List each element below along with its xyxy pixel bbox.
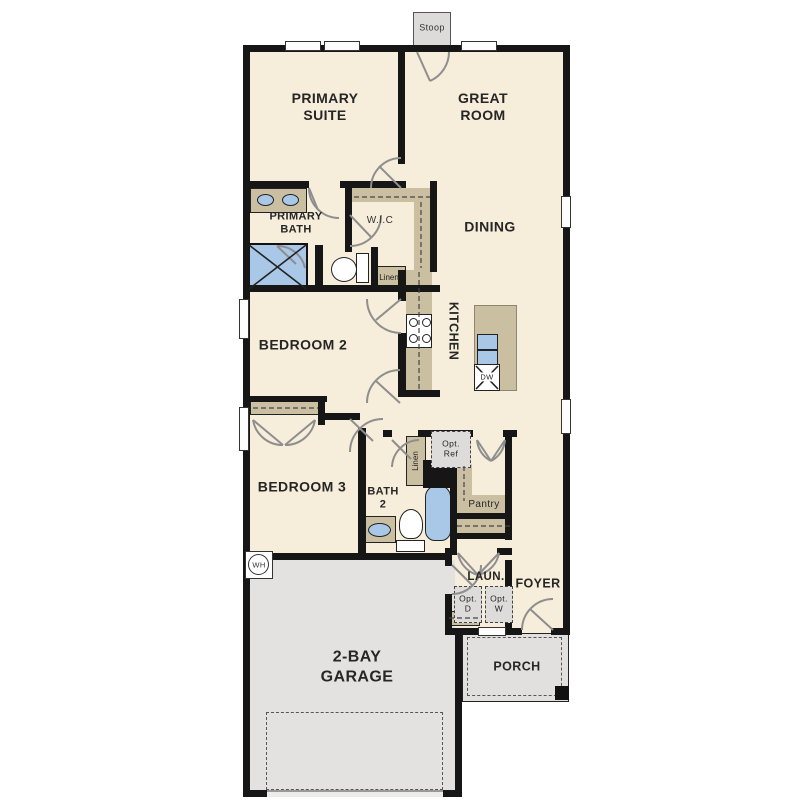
water-heater-label: WH	[252, 560, 265, 569]
bath2-label: BATH 2	[367, 486, 398, 513]
stoop-label: Stoop	[419, 23, 445, 34]
wall	[340, 181, 406, 188]
wall	[398, 270, 406, 301]
wall	[563, 45, 570, 635]
wall	[497, 548, 512, 555]
burner-icon	[422, 318, 431, 327]
garage-door-dash	[266, 712, 443, 790]
floor-plan: Stoop PRIMARY SUITE GREAT ROOM PRIMARY B…	[0, 0, 810, 810]
island-sink-divider	[477, 349, 498, 351]
wall	[430, 181, 437, 272]
shower	[247, 243, 308, 291]
toilet-bowl	[399, 509, 423, 539]
wall	[455, 533, 512, 539]
porch-post	[555, 686, 569, 700]
wall	[322, 413, 360, 420]
window	[461, 41, 497, 51]
window	[324, 41, 360, 51]
toilet-tank	[396, 540, 425, 552]
wall	[445, 628, 480, 635]
opt-dryer-label: Opt. D	[459, 594, 477, 615]
great-room-label: GREAT ROOM	[458, 90, 508, 124]
laundry-label: LAUN.	[467, 570, 504, 584]
wall	[243, 285, 440, 292]
wall	[243, 553, 452, 560]
window	[561, 196, 571, 228]
pantry-label: Pantry	[468, 499, 499, 511]
wall	[243, 181, 309, 188]
bathtub	[425, 485, 451, 541]
dishwasher-label: DW	[479, 372, 494, 381]
window	[478, 627, 506, 636]
wall	[345, 188, 352, 252]
window	[239, 299, 249, 339]
wall	[455, 630, 462, 797]
wall	[383, 430, 392, 437]
burner-icon	[409, 334, 418, 343]
wic-shelf-right	[414, 188, 430, 270]
bedroom3-closet	[250, 401, 320, 415]
wall	[358, 428, 366, 555]
burner-icon	[422, 334, 431, 343]
bedroom2-label: BEDROOM 2	[259, 336, 347, 353]
linen-lower-label: Linen	[411, 451, 421, 471]
wic-label: W.I.C	[367, 215, 393, 227]
kitchen-label: KITCHEN	[445, 302, 460, 360]
window	[561, 399, 571, 434]
coat-closet-shelf	[455, 519, 512, 533]
wall	[450, 483, 457, 555]
toilet-tank	[356, 253, 369, 283]
porch-label: PORCH	[493, 659, 540, 674]
wall	[445, 548, 452, 566]
linen-upper-label: Linen	[379, 273, 399, 283]
opt-washer-label: Opt. W	[490, 594, 508, 615]
wall	[398, 333, 406, 397]
garage-door-opening	[267, 790, 443, 797]
toilet-bowl	[331, 257, 357, 282]
wall	[505, 628, 522, 635]
bedroom3-label: BEDROOM 3	[258, 478, 346, 495]
burner-icon	[409, 318, 418, 327]
wall	[243, 396, 327, 402]
primary-bath-label: PRIMARY BATH	[269, 211, 322, 238]
window	[285, 41, 321, 51]
vanity-sink-icon	[257, 194, 274, 206]
wall	[318, 399, 325, 425]
wall	[505, 430, 512, 540]
wall	[551, 628, 570, 635]
foyer-label: FOYER	[515, 576, 560, 591]
garage-label: 2-BAY GARAGE	[321, 647, 394, 686]
window	[239, 407, 249, 451]
wall	[455, 513, 512, 519]
wall	[398, 45, 405, 164]
bath2-sink-icon	[368, 523, 391, 537]
primary-suite-label: PRIMARY SUITE	[292, 90, 359, 124]
dining-label: DINING	[464, 218, 515, 235]
wall	[398, 390, 440, 397]
opt-ref-label: Opt. Ref	[442, 439, 460, 460]
vanity-sink-icon	[282, 194, 299, 206]
